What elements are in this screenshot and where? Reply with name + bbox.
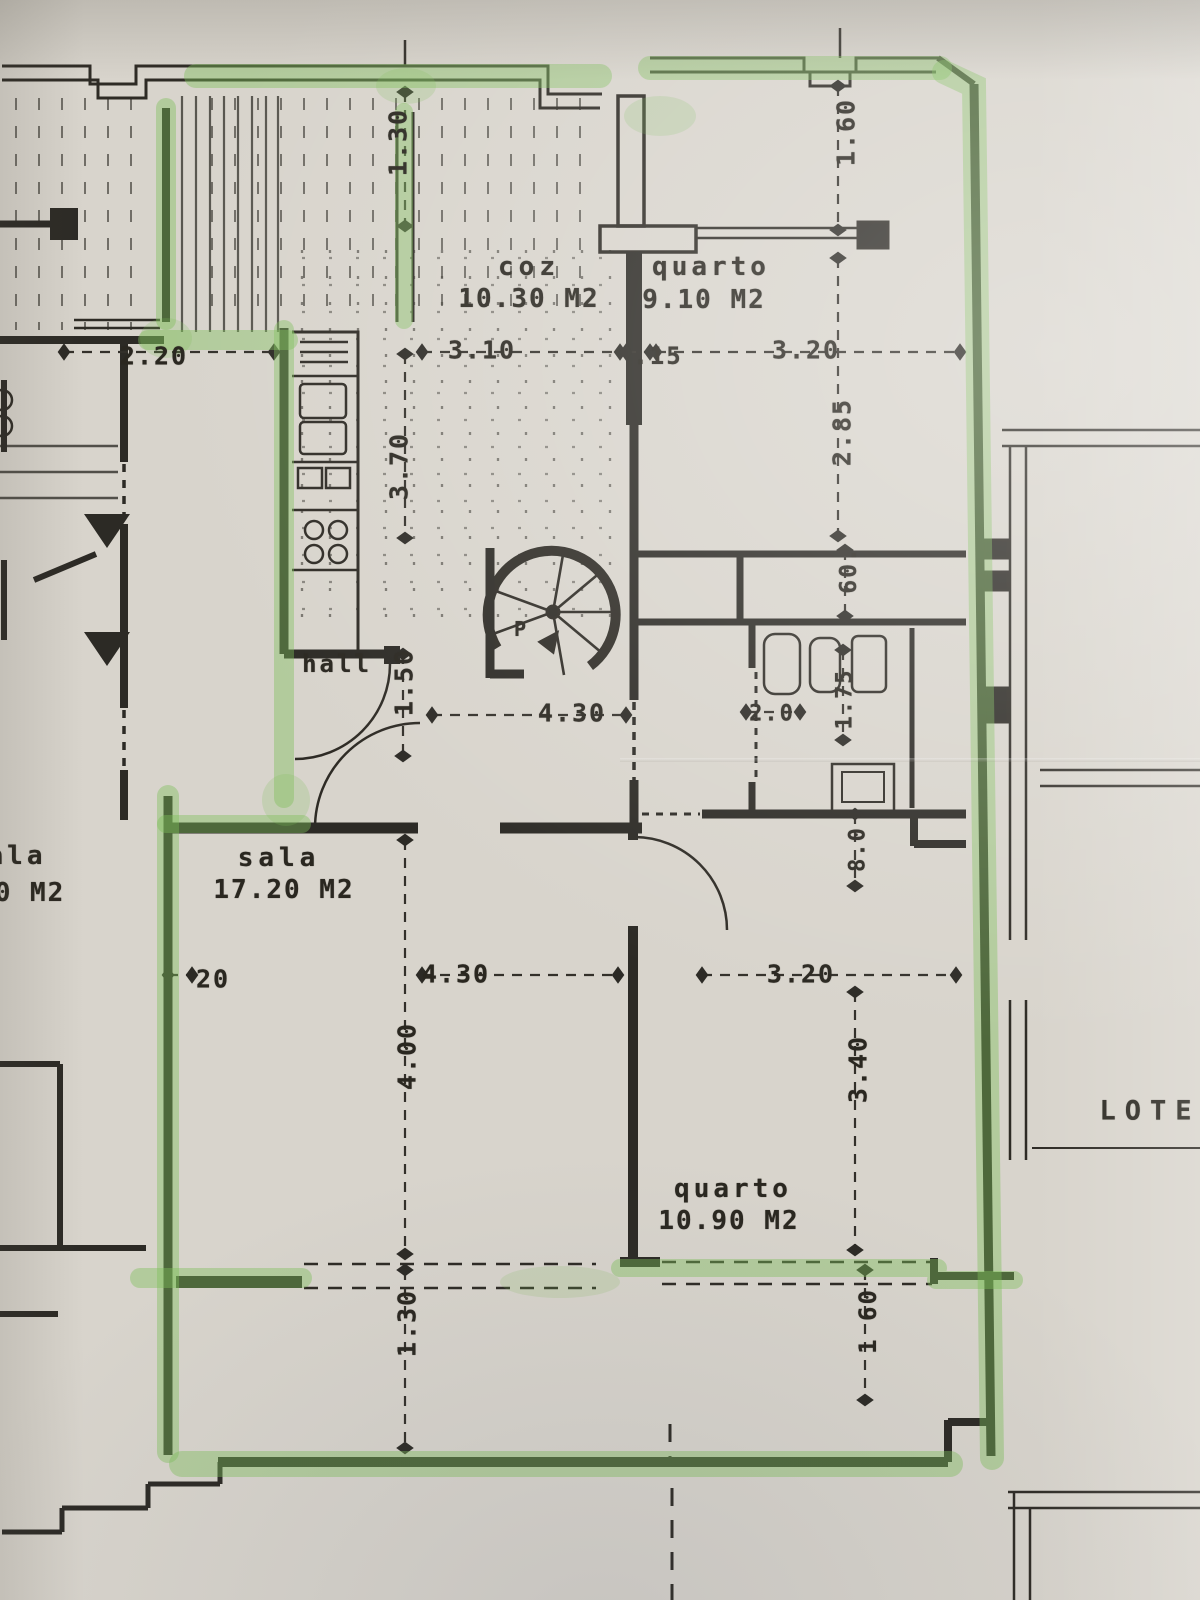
room-label-neighbor-sala: ala: [0, 841, 46, 871]
t-wall-crossbar: [600, 226, 696, 252]
highlighter-layer: [140, 68, 1014, 1464]
dim-hall-length: 4.30: [538, 699, 606, 728]
shower-tray-inner: [842, 772, 884, 802]
dim-sala-width: 4.30: [422, 960, 490, 989]
dim-quarto2-width: 3.20: [767, 960, 835, 989]
hall-door-arc: [295, 664, 390, 759]
plan-photo-area: coz 10.30 M2 quarto 9.10 M2 sala 17.20 M…: [0, 0, 1200, 1600]
hl-bleed-4: [262, 774, 310, 826]
burner-1: [305, 521, 323, 539]
dim-kitchen-width: 3.10: [448, 336, 516, 365]
stair-diagonal: [34, 554, 96, 580]
room-area-neighbor-sala: 0 M2: [0, 878, 65, 908]
stair-direction-arrow: [540, 633, 557, 652]
burner-3: [305, 545, 323, 563]
left-pillar: [50, 208, 78, 240]
room-label-sala: sala: [238, 843, 321, 873]
lote-left-wall: [1010, 446, 1026, 1160]
dim-terrace-top-right: 1.60: [832, 98, 861, 166]
floor-plan-photo: { "rooms": [ {"name": "coz", "area": "10…: [0, 0, 1200, 1600]
hl-bleed-3: [624, 96, 696, 136]
dim-quarto1-depth: 2.85: [828, 398, 857, 466]
dim-wall-thickness: .15: [633, 342, 682, 370]
left-bottom-walls: [0, 1064, 146, 1314]
spiral-stair-pole: [547, 606, 559, 618]
bottom-centerline: [670, 1424, 672, 1600]
dim-balcony-right: 1 60: [854, 1288, 882, 1354]
bath-door-dashes: [642, 672, 756, 814]
room-area-quarto1: 9.10 M2: [642, 285, 766, 315]
pillar-top-right: [858, 222, 888, 248]
room-label-cozinha: coz: [498, 252, 560, 282]
lote-mid-edge: [1040, 770, 1200, 786]
toilet: [764, 634, 800, 694]
room-label-hall: hall: [302, 650, 372, 678]
dim-wc-width: 1.75: [833, 669, 858, 730]
dim-left-width: 2.20: [120, 342, 188, 371]
room-area-quarto2: 10.90 M2: [658, 1206, 799, 1236]
stair-flight-hatch: [182, 96, 278, 332]
hl-right-wall: [944, 72, 992, 1458]
closet-strip-walls: [638, 554, 966, 668]
burner-2: [329, 521, 347, 539]
room-area-sala: 17.20 M2: [213, 875, 354, 905]
dim-sala-wall: 20: [196, 965, 230, 994]
sink-drainer-lines: [300, 342, 348, 362]
hl-bleed-5: [500, 1266, 620, 1298]
dim-balcony-left: 1.30: [393, 1289, 422, 1357]
thin-lines-layer: [0, 28, 1200, 1600]
dim-quarto1-width: 3.20: [772, 336, 840, 365]
quarto1-window: [696, 228, 860, 238]
paper-crease: [620, 758, 1200, 762]
dim-sala-depth: 4.00: [393, 1022, 422, 1090]
stair-p-label: P: [514, 617, 528, 641]
dim-wc-depth: 8.0: [846, 826, 871, 872]
sala-door-arc: [315, 723, 420, 828]
stair-treads: [0, 446, 118, 498]
lote-bottom-structure: [1008, 1492, 1200, 1600]
dim-kitchen-depth: 3.70: [385, 432, 414, 500]
sink-basin-2: [300, 422, 346, 454]
quarto2-door-arc: [634, 837, 727, 930]
floor-plan-drawing: [0, 0, 1200, 1600]
dim-hall-width: 1.50: [390, 648, 419, 716]
hl-quarto-bottom: [620, 1268, 1014, 1280]
dim-terrace-top: 1.30: [384, 108, 413, 176]
dim-quarto2-depth: 3.40: [844, 1035, 873, 1103]
lote-top-edge: [1002, 430, 1200, 446]
room-area-cozinha: 10.30 M2: [458, 284, 599, 314]
lot-label: LOTE: [1099, 1096, 1200, 1127]
room-label-quarto2: quarto: [674, 1174, 792, 1204]
dim-closet-depth: 60.: [836, 546, 862, 594]
dim-door-width: 2.0: [749, 702, 795, 727]
room-label-quarto1: quarto: [652, 252, 770, 282]
hl-bleed-2: [376, 68, 436, 104]
sink-basin-1: [300, 384, 346, 418]
bath-shaft-jog: [914, 814, 966, 846]
